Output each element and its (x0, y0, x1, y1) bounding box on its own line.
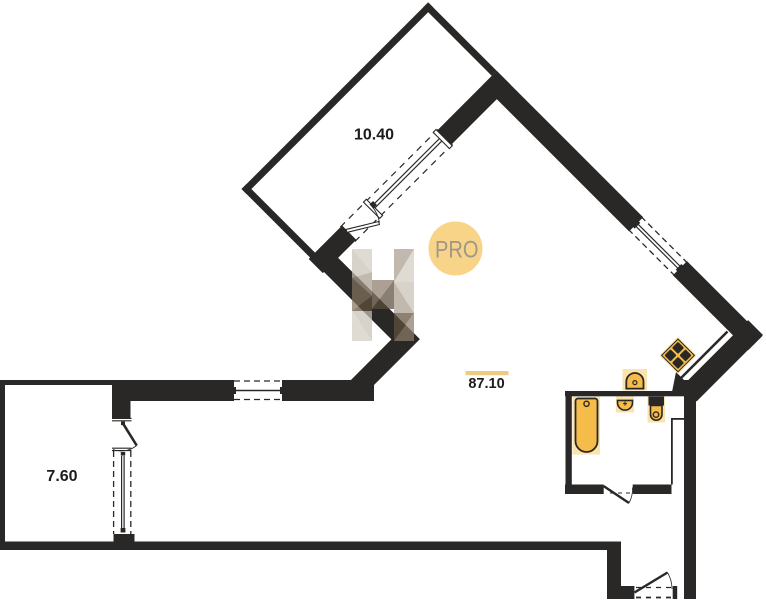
svg-text:87.10: 87.10 (468, 376, 504, 392)
svg-text:7.60: 7.60 (46, 468, 77, 485)
svg-text:10.40: 10.40 (354, 127, 394, 144)
svg-text:PRO: PRO (435, 236, 479, 263)
